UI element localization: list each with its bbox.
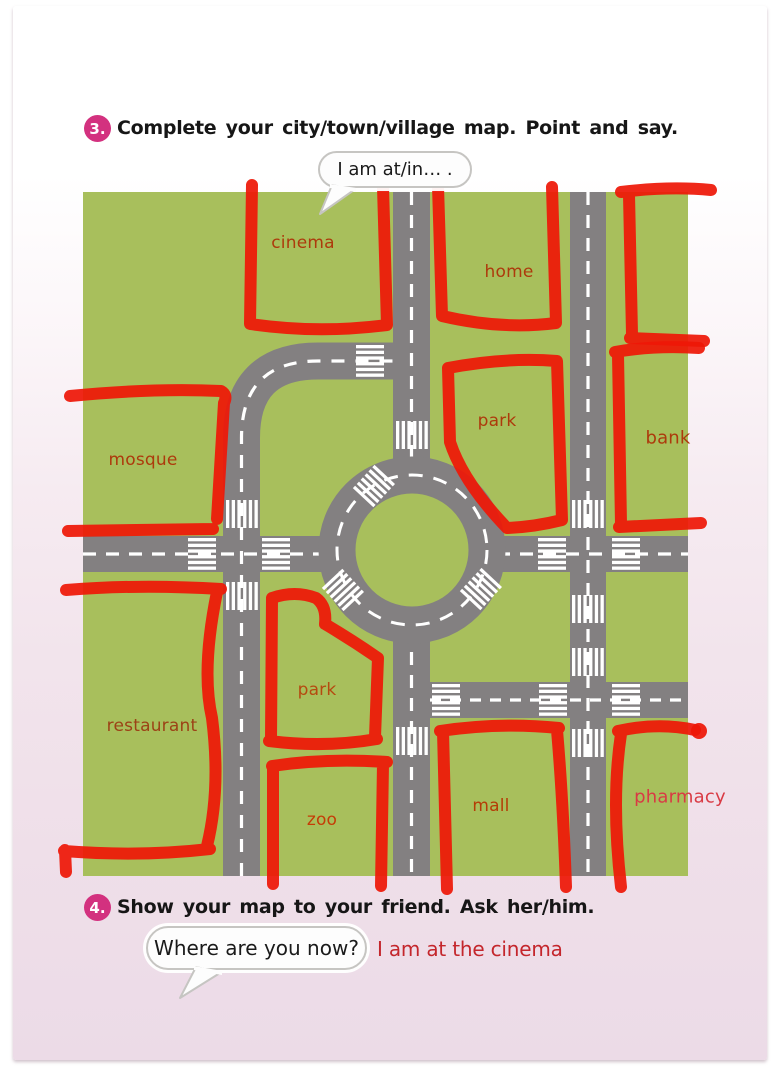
exercise-3-number-badge: 3. (84, 115, 111, 142)
map-label-mall: mall (472, 796, 509, 816)
map-label-park-north: park (478, 411, 517, 431)
exercise-4-number-badge: 4. (84, 894, 111, 921)
map-label-restaurant: restaurant (107, 716, 198, 736)
map-label-bank: bank (645, 428, 690, 449)
speech-bubble-where-are-you: Where are you now? (146, 926, 367, 970)
roundabout (337, 475, 487, 625)
map-label-cinema: cinema (271, 233, 334, 253)
exercise-4-instruction: Show your map to your friend. Ask her/hi… (117, 894, 594, 918)
handwritten-answer: I am at the cinema (377, 937, 563, 961)
map-label-mosque: mosque (108, 450, 177, 470)
map-label-pharmacy: pharmacy (634, 787, 726, 808)
speech-bubble-tail (316, 184, 358, 218)
map-label-zoo: zoo (307, 810, 337, 830)
speech-bubble-where-are-you-text: Where are you now? (154, 936, 359, 960)
exercise-3-instruction: Complete your city/town/village map. Poi… (117, 115, 678, 139)
map-label-home: home (485, 262, 534, 282)
exercise-4-header: 4. Show your map to your friend. Ask her… (84, 894, 594, 921)
exercise-3-header: 3. Complete your city/town/village map. … (84, 115, 678, 142)
speech-bubble-tail-2 (176, 966, 224, 1002)
speech-bubble-i-am-at-text: I am at/in… . (337, 159, 452, 180)
speech-bubble-i-am-at: I am at/in… . (318, 151, 472, 188)
map-label-park-south: park (298, 680, 337, 700)
